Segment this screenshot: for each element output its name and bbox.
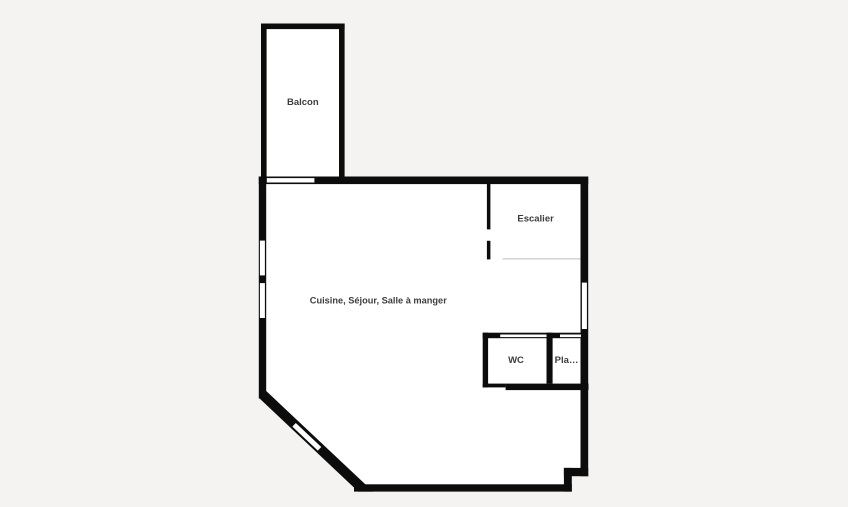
svg-text:Balcon: Balcon xyxy=(287,97,319,108)
svg-text:Escalier: Escalier xyxy=(517,214,554,225)
svg-text:WC: WC xyxy=(508,355,524,366)
svg-text:Pla…: Pla… xyxy=(555,355,579,366)
svg-text:Cuisine, Séjour, Salle à mange: Cuisine, Séjour, Salle à manger xyxy=(310,296,447,307)
